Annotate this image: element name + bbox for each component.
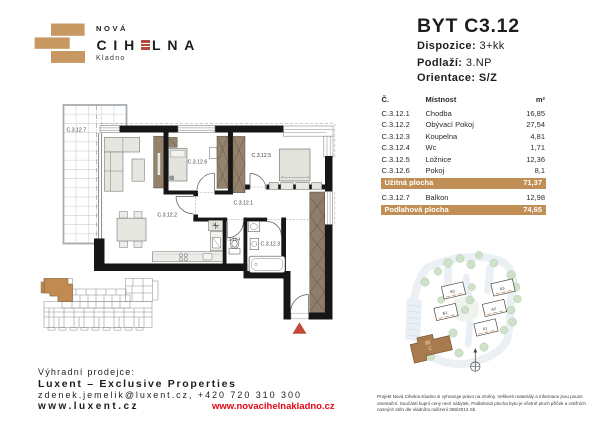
svg-text:C.3.12.4: C.3.12.4 — [225, 237, 242, 242]
svg-text:C.3.12.5: C.3.12.5 — [252, 153, 272, 159]
svg-text:C.3.12.1: C.3.12.1 — [234, 201, 254, 207]
svg-text:C.3.12.6: C.3.12.6 — [188, 159, 208, 165]
svg-text:C.3.12.7: C.3.12.7 — [67, 128, 87, 134]
svg-text:C.3.12.2: C.3.12.2 — [157, 213, 177, 219]
svg-text:C.3.12.3: C.3.12.3 — [261, 242, 281, 248]
